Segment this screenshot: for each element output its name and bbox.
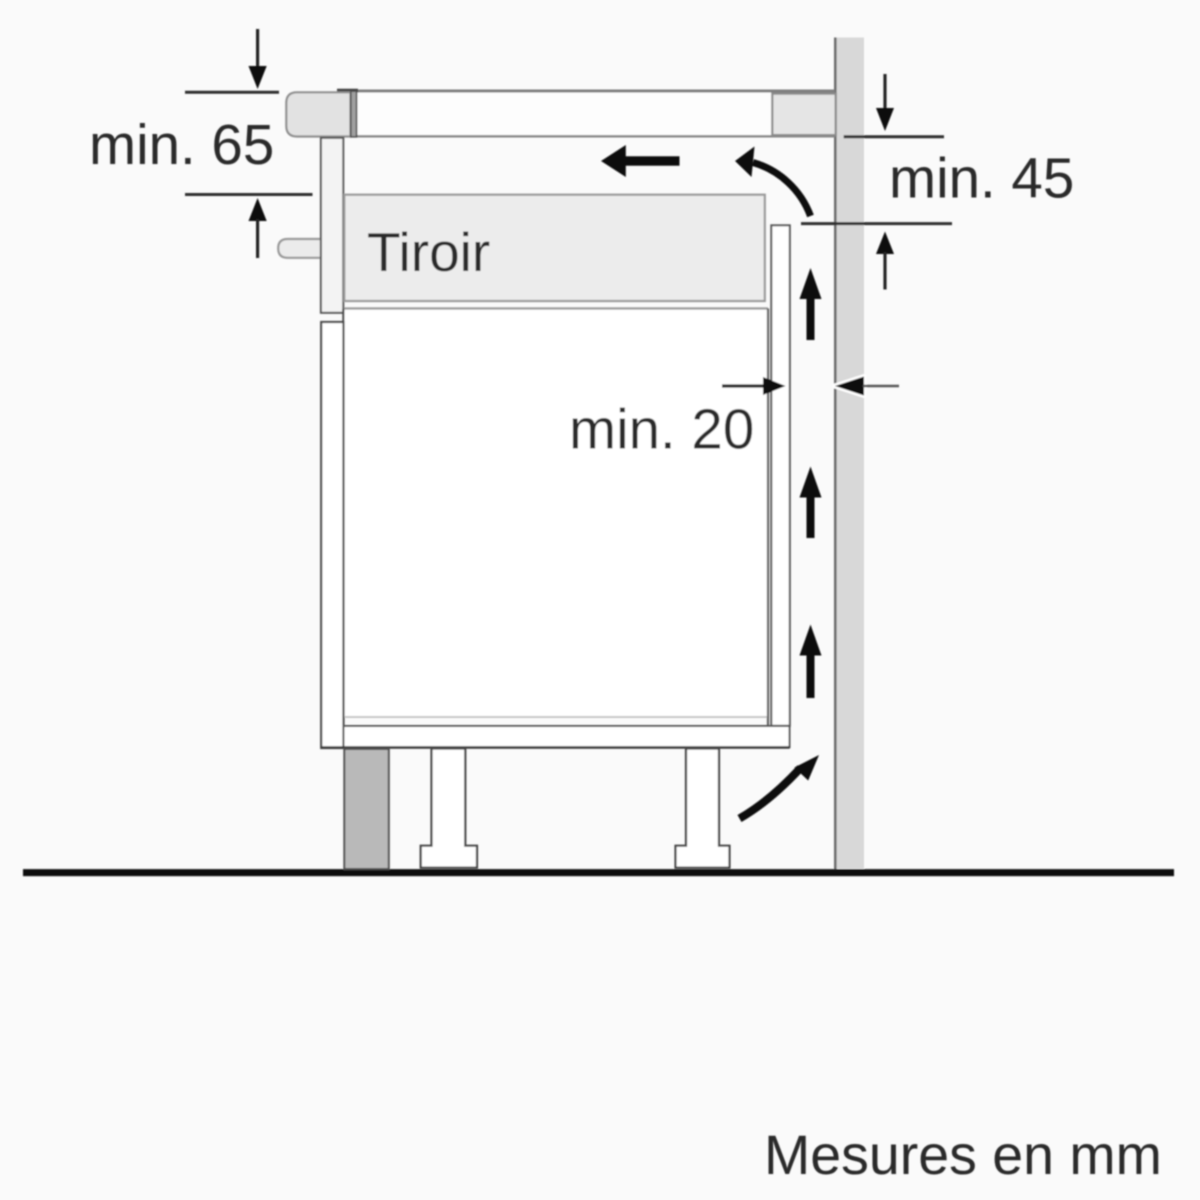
svg-text:min. 45: min. 45 <box>889 147 1074 210</box>
svg-text:Tiroir: Tiroir <box>367 221 490 283</box>
svg-text:min. 20: min. 20 <box>569 398 754 461</box>
svg-text:Mesures en mm: Mesures en mm <box>764 1124 1162 1186</box>
svg-text:min. 65: min. 65 <box>89 113 274 176</box>
